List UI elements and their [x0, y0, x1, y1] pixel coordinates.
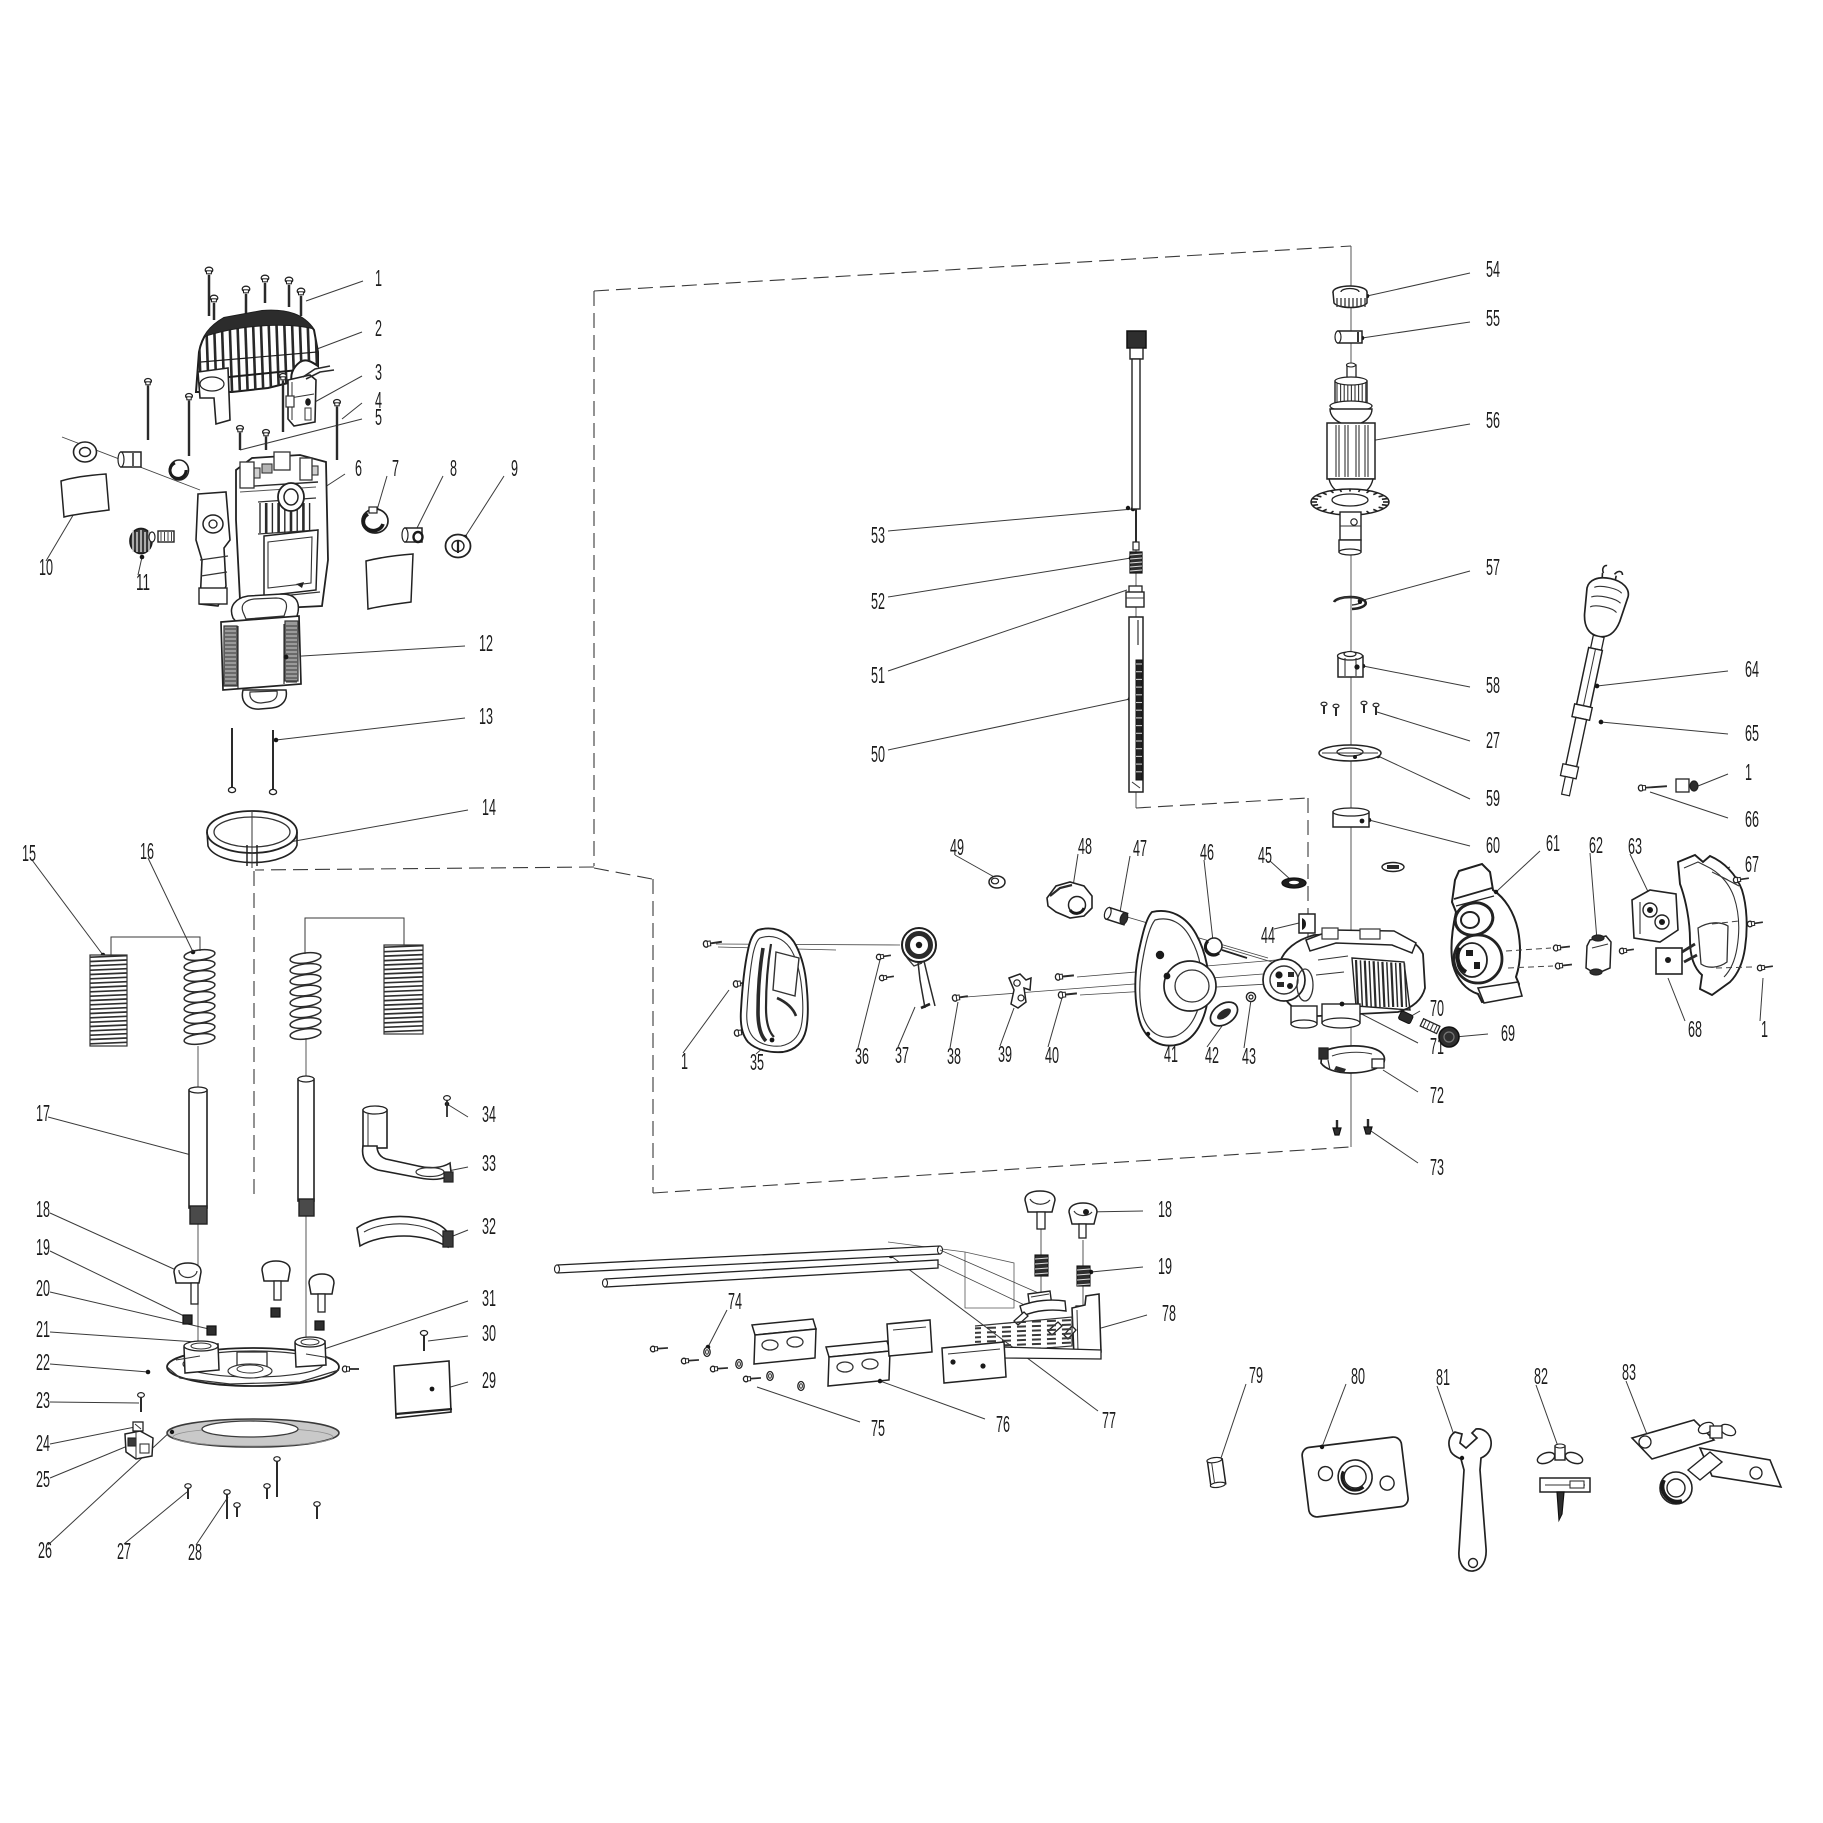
svg-text:58: 58 — [1486, 672, 1500, 698]
svg-text:18: 18 — [36, 1196, 50, 1222]
svg-text:45: 45 — [1258, 842, 1272, 868]
svg-text:80: 80 — [1351, 1363, 1365, 1389]
svg-text:5: 5 — [375, 404, 382, 430]
svg-text:48: 48 — [1078, 833, 1092, 859]
svg-text:63: 63 — [1628, 833, 1642, 859]
svg-text:49: 49 — [950, 834, 964, 860]
svg-text:47: 47 — [1133, 835, 1147, 861]
svg-text:28: 28 — [188, 1539, 202, 1565]
svg-text:17: 17 — [36, 1100, 50, 1126]
svg-text:83: 83 — [1622, 1359, 1636, 1385]
svg-text:14: 14 — [482, 794, 496, 820]
svg-text:8: 8 — [450, 455, 457, 481]
svg-text:24: 24 — [36, 1430, 50, 1456]
svg-text:35: 35 — [750, 1049, 764, 1075]
svg-text:42: 42 — [1205, 1042, 1219, 1068]
svg-text:50: 50 — [871, 741, 885, 767]
svg-text:60: 60 — [1486, 832, 1500, 858]
svg-text:29: 29 — [482, 1367, 496, 1393]
svg-text:9: 9 — [511, 455, 518, 481]
svg-text:81: 81 — [1436, 1364, 1450, 1390]
svg-text:31: 31 — [482, 1285, 496, 1311]
svg-text:46: 46 — [1200, 839, 1214, 865]
svg-text:61: 61 — [1546, 830, 1560, 856]
svg-text:76: 76 — [996, 1411, 1010, 1437]
svg-text:82: 82 — [1534, 1363, 1548, 1389]
svg-text:57: 57 — [1486, 554, 1500, 580]
svg-text:18: 18 — [1158, 1196, 1172, 1222]
svg-text:26: 26 — [38, 1537, 52, 1563]
svg-text:73: 73 — [1430, 1154, 1444, 1180]
svg-text:10: 10 — [39, 554, 53, 580]
svg-text:1: 1 — [681, 1048, 688, 1074]
svg-text:2: 2 — [375, 315, 382, 341]
svg-text:53: 53 — [871, 522, 885, 548]
svg-text:51: 51 — [871, 662, 885, 688]
svg-text:59: 59 — [1486, 785, 1500, 811]
svg-text:38: 38 — [947, 1043, 961, 1069]
svg-text:62: 62 — [1589, 832, 1603, 858]
svg-text:27: 27 — [1486, 727, 1500, 753]
svg-text:78: 78 — [1162, 1300, 1176, 1326]
svg-text:19: 19 — [36, 1234, 50, 1260]
svg-text:79: 79 — [1249, 1362, 1263, 1388]
svg-text:1: 1 — [375, 265, 382, 291]
svg-text:56: 56 — [1486, 407, 1500, 433]
svg-text:44: 44 — [1261, 922, 1275, 948]
svg-text:52: 52 — [871, 588, 885, 614]
svg-text:25: 25 — [36, 1466, 50, 1492]
svg-text:15: 15 — [22, 840, 36, 866]
svg-text:1: 1 — [1745, 759, 1752, 785]
svg-text:37: 37 — [895, 1042, 909, 1068]
svg-text:65: 65 — [1745, 720, 1759, 746]
svg-text:12: 12 — [479, 630, 493, 656]
svg-text:74: 74 — [728, 1288, 742, 1314]
svg-text:27: 27 — [117, 1538, 131, 1564]
svg-text:40: 40 — [1045, 1042, 1059, 1068]
svg-text:64: 64 — [1745, 656, 1759, 682]
svg-text:43: 43 — [1242, 1043, 1256, 1069]
svg-text:11: 11 — [136, 569, 150, 595]
svg-text:13: 13 — [479, 703, 493, 729]
svg-text:34: 34 — [482, 1101, 496, 1127]
svg-text:23: 23 — [36, 1387, 50, 1413]
svg-text:33: 33 — [482, 1150, 496, 1176]
svg-text:67: 67 — [1745, 851, 1759, 877]
svg-text:69: 69 — [1501, 1020, 1515, 1046]
svg-text:68: 68 — [1688, 1016, 1702, 1042]
svg-text:75: 75 — [871, 1415, 885, 1441]
svg-text:1: 1 — [1761, 1016, 1768, 1042]
svg-text:39: 39 — [998, 1041, 1012, 1067]
svg-text:16: 16 — [140, 838, 154, 864]
svg-text:3: 3 — [375, 359, 382, 385]
svg-text:22: 22 — [36, 1349, 50, 1375]
svg-text:19: 19 — [1158, 1253, 1172, 1279]
svg-text:77: 77 — [1102, 1407, 1116, 1433]
svg-text:32: 32 — [482, 1213, 496, 1239]
svg-text:30: 30 — [482, 1320, 496, 1346]
svg-text:21: 21 — [36, 1316, 50, 1342]
svg-text:20: 20 — [36, 1275, 50, 1301]
svg-text:36: 36 — [855, 1043, 869, 1069]
svg-text:72: 72 — [1430, 1082, 1444, 1108]
svg-text:7: 7 — [392, 455, 399, 481]
svg-text:6: 6 — [355, 455, 362, 481]
svg-text:66: 66 — [1745, 806, 1759, 832]
svg-text:70: 70 — [1430, 995, 1444, 1021]
svg-text:54: 54 — [1486, 256, 1500, 282]
svg-text:55: 55 — [1486, 305, 1500, 331]
